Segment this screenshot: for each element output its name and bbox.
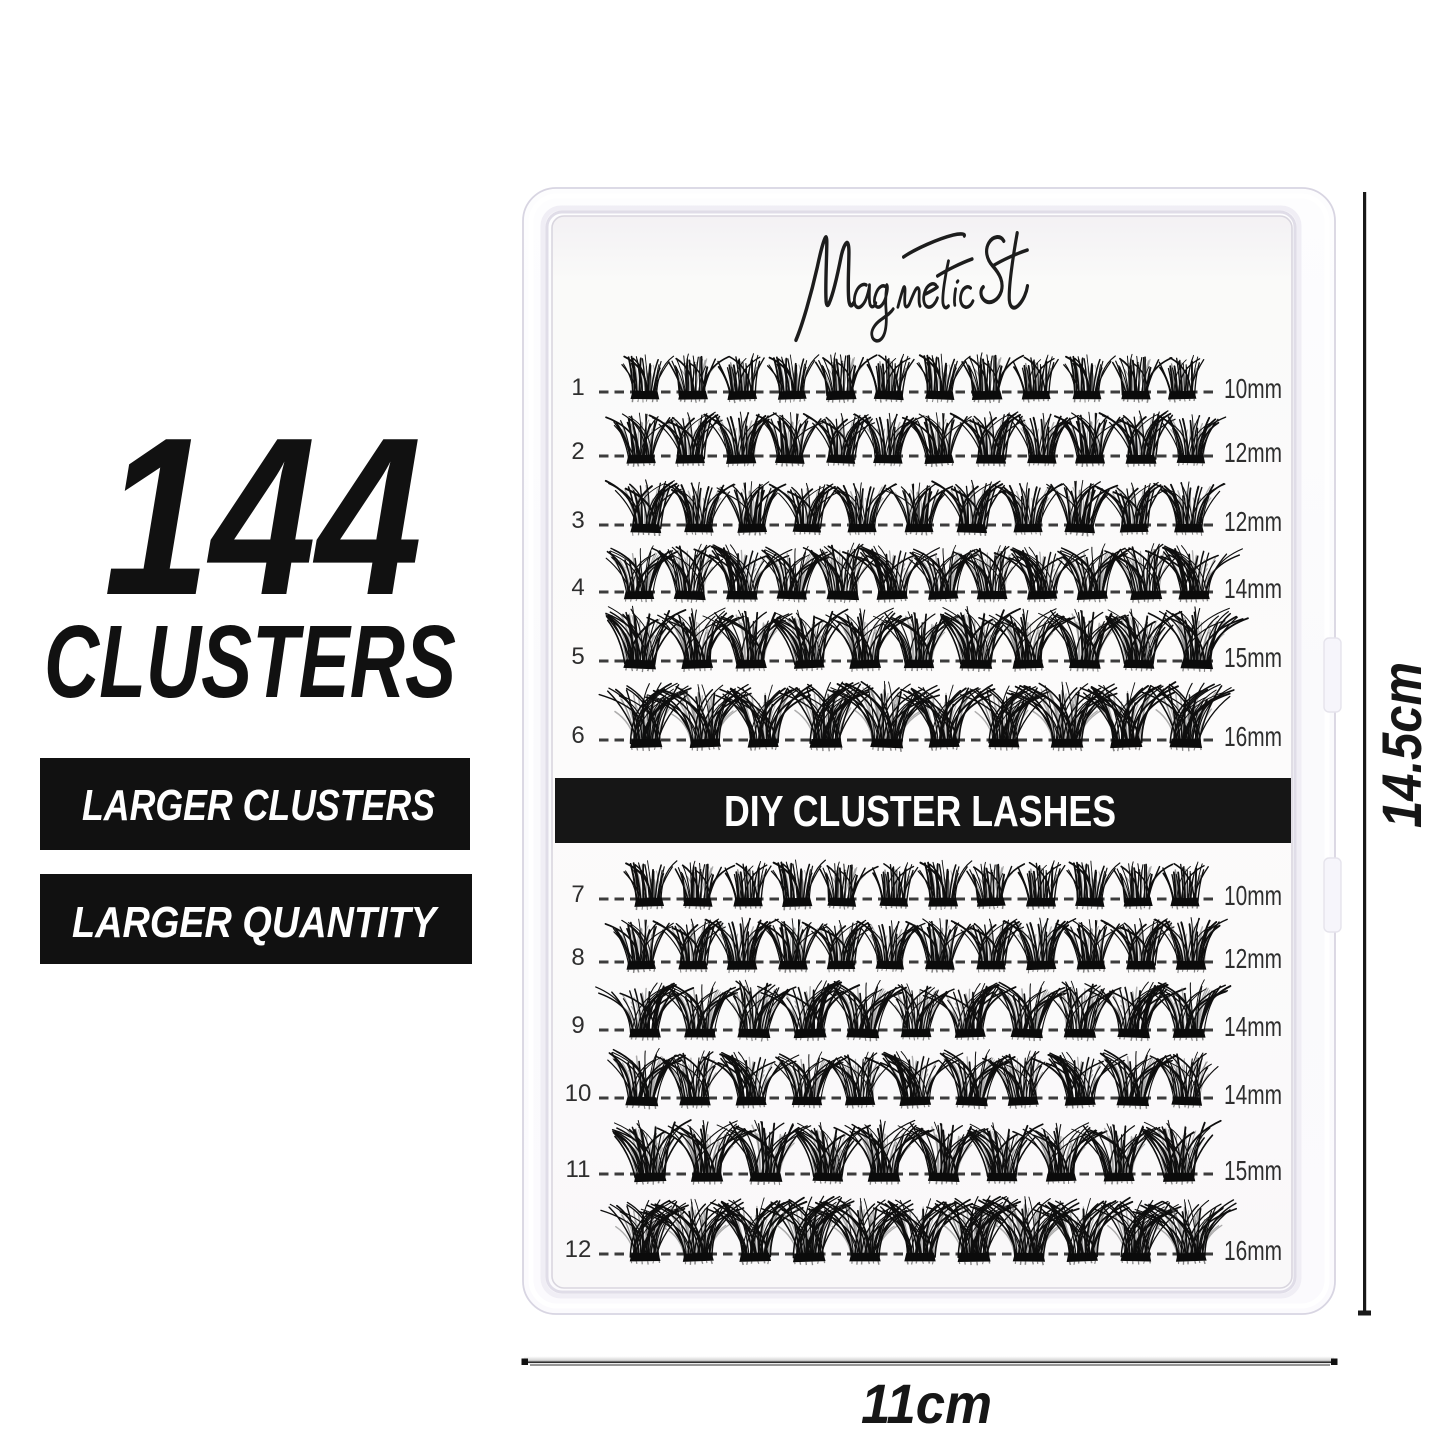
svg-text:14mm: 14mm: [1224, 1011, 1282, 1042]
svg-text:DIY CLUSTER LASHES: DIY CLUSTER LASHES: [724, 787, 1116, 836]
svg-text:LARGER CLUSTERS: LARGER CLUSTERS: [82, 782, 435, 830]
svg-text:16mm: 16mm: [1224, 721, 1282, 752]
svg-text:12mm: 12mm: [1224, 437, 1282, 468]
svg-text:LARGER QUANTITY: LARGER QUANTITY: [72, 899, 439, 947]
svg-text:12: 12: [565, 1236, 592, 1263]
svg-text:4: 4: [571, 574, 584, 601]
svg-text:14mm: 14mm: [1224, 1079, 1282, 1110]
svg-text:12mm: 12mm: [1224, 943, 1282, 974]
svg-text:15mm: 15mm: [1224, 642, 1282, 673]
svg-text:16mm: 16mm: [1224, 1235, 1282, 1266]
svg-text:10mm: 10mm: [1224, 373, 1282, 404]
svg-text:10: 10: [565, 1080, 592, 1107]
svg-text:15mm: 15mm: [1224, 1155, 1282, 1186]
svg-text:3: 3: [571, 507, 584, 534]
svg-text:5: 5: [571, 643, 584, 670]
svg-text:CLUSTERS: CLUSTERS: [44, 604, 456, 719]
svg-text:12mm: 12mm: [1224, 506, 1282, 537]
svg-text:11cm: 11cm: [861, 1372, 992, 1435]
svg-text:14mm: 14mm: [1224, 573, 1282, 604]
svg-text:7: 7: [571, 881, 584, 908]
svg-text:14.5cm: 14.5cm: [1370, 662, 1433, 828]
svg-text:10mm: 10mm: [1224, 880, 1282, 911]
svg-text:1: 1: [571, 374, 584, 401]
svg-text:9: 9: [571, 1012, 584, 1039]
svg-text:2: 2: [571, 438, 584, 465]
svg-text:11: 11: [566, 1156, 591, 1183]
svg-text:8: 8: [571, 944, 584, 971]
svg-text:6: 6: [571, 722, 584, 749]
